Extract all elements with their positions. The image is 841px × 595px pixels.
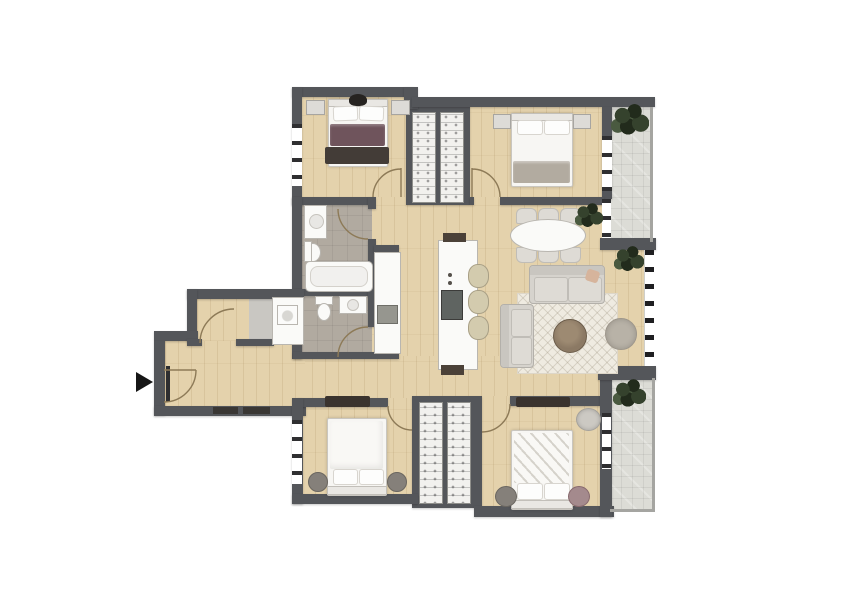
sink-basin xyxy=(309,214,324,229)
bedroom-rug xyxy=(325,147,389,164)
headboard-decor xyxy=(349,94,367,106)
wall xyxy=(368,197,376,209)
round-pouf xyxy=(568,486,590,507)
wall xyxy=(470,197,474,205)
balcony-railing xyxy=(652,378,655,511)
cooktop xyxy=(441,290,463,320)
wall xyxy=(154,341,165,415)
wall xyxy=(187,339,202,346)
bed-double xyxy=(511,113,573,187)
bed-double xyxy=(511,430,573,510)
bar-stool xyxy=(468,316,489,340)
potted-plant xyxy=(611,104,649,137)
bedroom-rug xyxy=(516,397,570,407)
window xyxy=(292,124,302,186)
nightstand xyxy=(306,100,325,115)
window-glass-wall xyxy=(644,250,654,366)
toilet-tank xyxy=(304,241,312,262)
bathroom-vanity xyxy=(304,205,327,239)
sofa xyxy=(529,265,605,304)
round-pouf xyxy=(387,472,407,492)
island-end-bench xyxy=(443,233,466,242)
utility-floor xyxy=(249,299,274,341)
wall xyxy=(374,245,399,252)
window xyxy=(292,420,302,484)
potted-plant xyxy=(614,246,644,273)
balcony-railing xyxy=(610,509,655,512)
bar-stool xyxy=(468,264,489,288)
bed-pillow xyxy=(333,106,359,122)
bathtub xyxy=(305,261,373,292)
bed-double xyxy=(327,418,387,496)
wardrobe-closet xyxy=(440,112,464,203)
duvet-rumple xyxy=(514,433,569,483)
room-floor xyxy=(197,299,251,341)
oven xyxy=(377,305,398,324)
bed-pillow xyxy=(544,483,570,500)
sofa-cushion xyxy=(534,277,568,302)
kitchen-counter xyxy=(374,252,401,354)
bed-pillow xyxy=(544,120,570,135)
island-end-bench xyxy=(441,365,464,375)
potted-plant xyxy=(613,379,646,409)
nightstand xyxy=(573,114,591,129)
loveseat-back xyxy=(501,305,509,367)
room-floor xyxy=(165,341,305,407)
washing-machine xyxy=(277,305,298,325)
sink-basin xyxy=(347,299,359,311)
toilet xyxy=(317,303,331,321)
door-threshold xyxy=(243,407,270,414)
wardrobe-closet xyxy=(419,402,443,504)
bed-pillow xyxy=(359,106,385,122)
nightstand xyxy=(493,114,511,129)
loveseat-cushion xyxy=(511,337,532,365)
door-threshold xyxy=(213,407,238,414)
window xyxy=(602,199,611,238)
pouf xyxy=(605,318,637,350)
bed-pillow xyxy=(333,469,358,485)
coffee-table xyxy=(553,319,587,353)
wash-basin xyxy=(339,296,367,314)
wall xyxy=(292,197,373,205)
wall xyxy=(236,339,274,346)
bathtub-basin xyxy=(310,266,368,287)
wardrobe-closet xyxy=(412,112,436,203)
bed-blanket xyxy=(513,161,570,183)
balcony-railing xyxy=(650,107,653,242)
sink-tap xyxy=(448,281,452,285)
sink-tap xyxy=(448,273,452,277)
entrance-door-opening xyxy=(166,366,170,402)
bed-pillow xyxy=(359,469,384,485)
entrance-arrow xyxy=(136,372,153,392)
bed-headboard xyxy=(511,500,573,509)
bed-pillow xyxy=(517,120,543,135)
floor-plan xyxy=(0,0,841,595)
round-pouf xyxy=(495,486,517,507)
window xyxy=(602,136,612,191)
bedroom-rug xyxy=(325,396,370,407)
window xyxy=(602,413,611,469)
bed-blanket xyxy=(330,124,385,146)
wardrobe-closet xyxy=(447,402,471,504)
round-pouf xyxy=(308,472,328,492)
loveseat xyxy=(500,304,534,368)
potted-plant xyxy=(575,203,603,229)
bed-duvet xyxy=(330,421,383,469)
bed-pillow xyxy=(517,483,543,500)
round-chair xyxy=(576,408,601,431)
nightstand xyxy=(391,100,410,115)
bar-stool xyxy=(468,290,489,314)
bed-headboard xyxy=(327,486,387,495)
bed-duvet xyxy=(514,433,569,483)
loveseat-cushion xyxy=(511,309,532,337)
